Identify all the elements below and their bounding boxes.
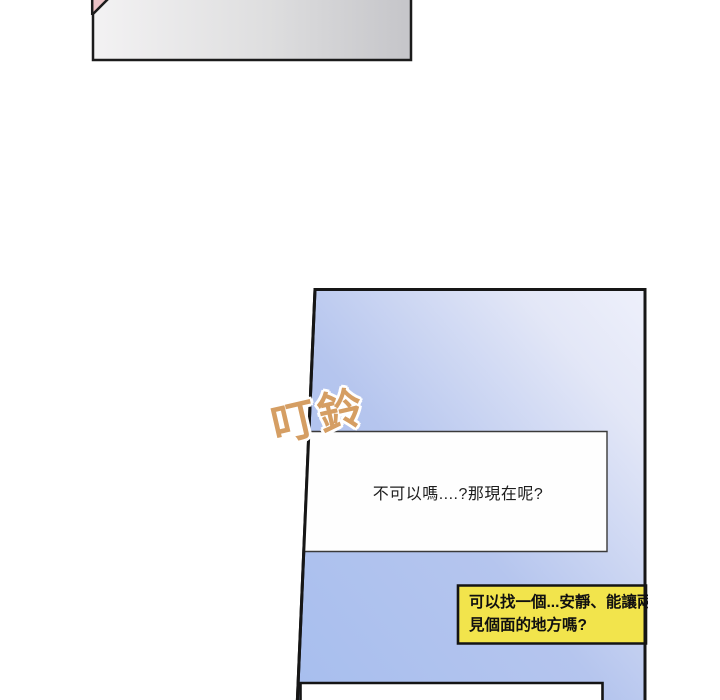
- yellow-bubble-line1: 可以找一個...安靜、能讓兩: [469, 591, 648, 614]
- yellow-bubble-text: 可以找一個...安靜、能讓兩 見個面的地方嗎?: [469, 591, 648, 641]
- bottom-speech-bubble: [301, 683, 603, 700]
- top-panel: [93, 0, 411, 60]
- white-bubble-text: 不可以嗎....?那現在呢?: [309, 432, 607, 551]
- comic-page: 不可以嗎....?那現在呢? 可以找一個...安靜、能讓兩 見個面的地方嗎? 叮…: [0, 0, 720, 700]
- yellow-bubble-line2: 見個面的地方嗎?: [469, 614, 648, 637]
